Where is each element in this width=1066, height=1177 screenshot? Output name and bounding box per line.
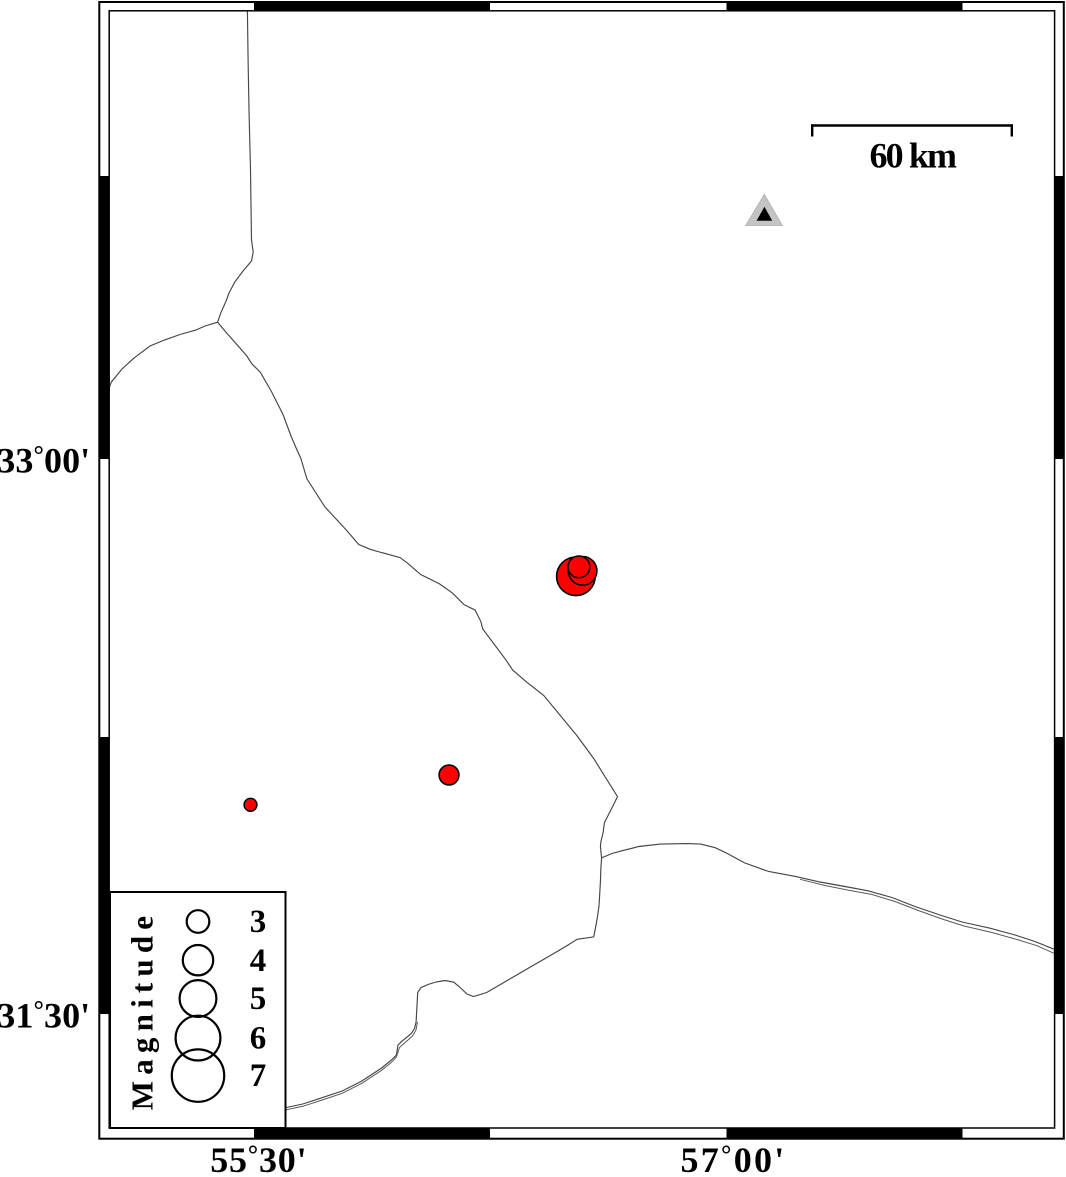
svg-text:5: 5 [250,981,267,1017]
svg-text:4: 4 [250,943,267,979]
svg-text:31°30': 31°30' [0,996,90,1036]
svg-text:3: 3 [250,904,267,940]
svg-text:33°00': 33°00' [0,441,90,481]
svg-text:55°30': 55°30' [210,1140,307,1177]
svg-text:57°00': 57°00' [681,1140,787,1177]
svg-text:Magnitude: Magnitude [125,910,160,1110]
svg-text:7: 7 [250,1058,267,1094]
svg-text:6: 6 [250,1021,267,1057]
svg-text:60 km: 60 km [870,136,957,176]
